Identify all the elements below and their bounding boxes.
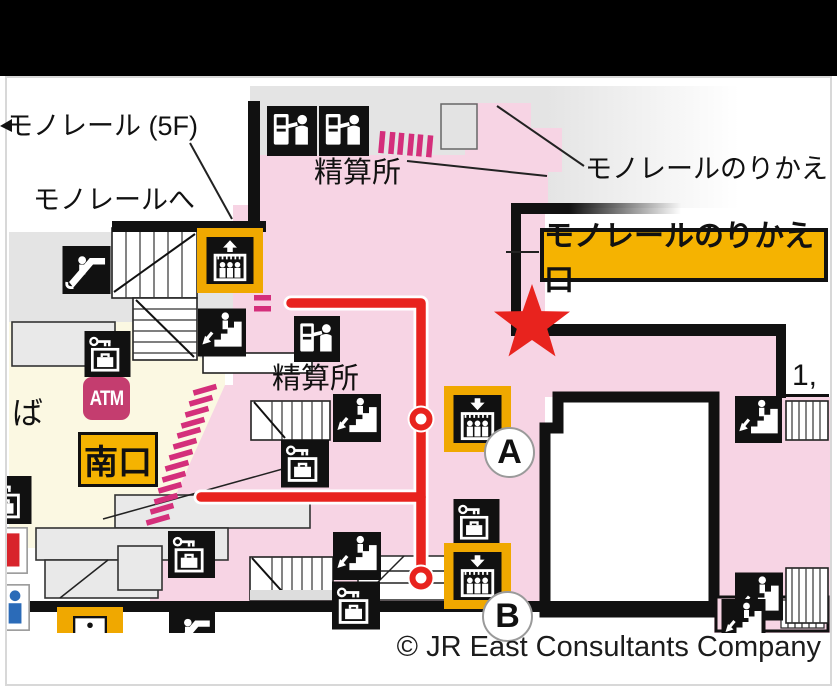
coin-locker-icon bbox=[281, 439, 329, 488]
elevator-up-icon bbox=[197, 228, 263, 293]
fare-office-label-top: 精算所 bbox=[314, 158, 401, 188]
boarding-label-partial: ば bbox=[12, 398, 43, 431]
stairs-down-icon bbox=[735, 396, 782, 443]
stairs-down-icon bbox=[333, 531, 381, 581]
platform-number-label: 1, bbox=[792, 360, 817, 392]
coin-locker-icon bbox=[332, 581, 380, 630]
fare-adjustment-machine-icon bbox=[318, 106, 370, 156]
escalator-icon bbox=[62, 246, 111, 294]
monorail-transfer-gate-sign: モノレールのりかえ口 bbox=[540, 228, 828, 282]
atm-badge: ATM bbox=[83, 377, 130, 420]
south-exit-sign: 南口 bbox=[78, 432, 158, 487]
fare-adjustment-machine-icon bbox=[266, 106, 318, 156]
fare-office-label-mid: 精算所 bbox=[272, 364, 359, 394]
station-map: モノレール (5F) モノレールへ 精算所 精算所 モノレールのりかえ モノレー… bbox=[0, 0, 837, 690]
coin-locker-icon bbox=[168, 531, 215, 578]
monorail-transfer-label: モノレールのりかえ bbox=[585, 155, 828, 183]
fare-adjustment-machine-icon bbox=[293, 316, 341, 362]
coin-locker-icon bbox=[453, 499, 500, 545]
coin-locker-icon bbox=[84, 331, 131, 377]
stairs-down-icon bbox=[198, 308, 246, 357]
elevator-a-badge: A bbox=[484, 427, 535, 478]
to-monorail-label: モノレールへ bbox=[33, 186, 195, 214]
monorail-5f-label: モノレール (5F) bbox=[6, 112, 198, 140]
copyright-text: © JR East Consultants Company bbox=[397, 631, 821, 664]
stairs-down-icon bbox=[333, 394, 381, 442]
icon-layer bbox=[0, 0, 837, 690]
